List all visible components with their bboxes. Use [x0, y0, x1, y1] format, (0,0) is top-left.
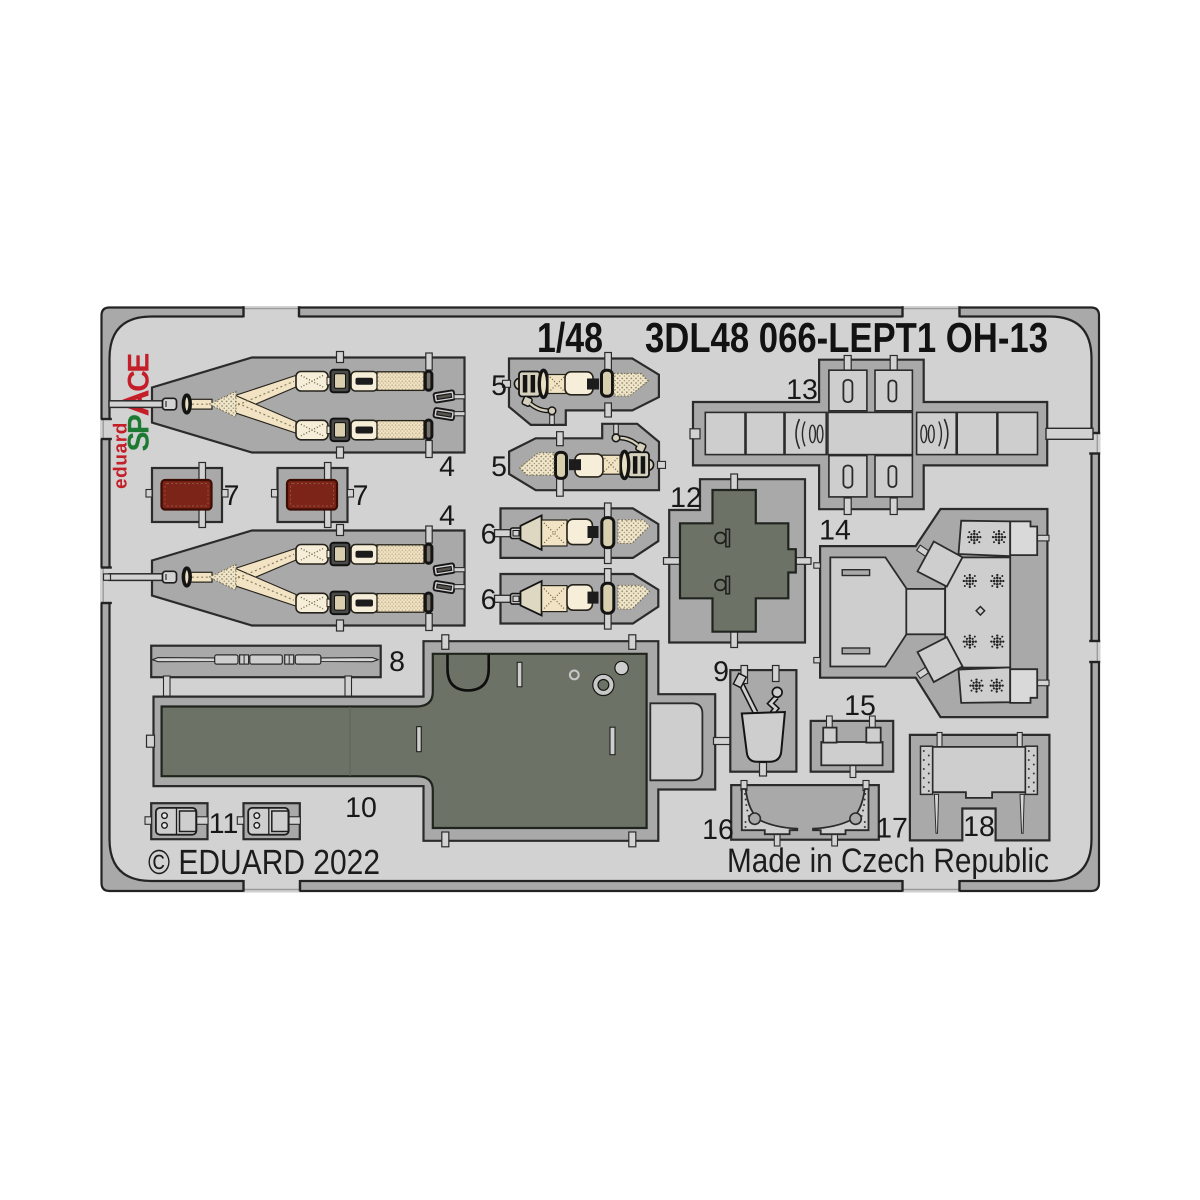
svg-text:5: 5	[491, 370, 507, 402]
svg-text:3DL48 066-LEPT1 OH-13: 3DL48 066-LEPT1 OH-13	[645, 314, 1048, 361]
svg-text:© EDUARD 2022: © EDUARD 2022	[148, 843, 380, 882]
svg-text:7: 7	[224, 480, 240, 512]
svg-text:10: 10	[345, 792, 377, 824]
svg-text:8: 8	[389, 646, 405, 678]
svg-text:14: 14	[819, 515, 851, 547]
svg-text:6: 6	[481, 519, 497, 551]
svg-text:13: 13	[786, 374, 818, 406]
svg-text:16: 16	[702, 814, 734, 846]
svg-text:5: 5	[491, 451, 507, 483]
svg-text:18: 18	[963, 811, 995, 843]
svg-text:12: 12	[670, 482, 702, 514]
svg-text:1/48: 1/48	[537, 314, 603, 361]
svg-text:6: 6	[481, 584, 497, 616]
svg-text:4: 4	[439, 500, 455, 532]
svg-text:Made in Czech Republic: Made in Czech Republic	[727, 842, 1049, 880]
svg-text:17: 17	[876, 813, 908, 845]
svg-text:9: 9	[713, 656, 729, 688]
svg-text:7: 7	[353, 480, 369, 512]
svg-text:15: 15	[844, 690, 876, 722]
svg-text:4: 4	[439, 451, 455, 483]
svg-text:11: 11	[209, 808, 239, 840]
